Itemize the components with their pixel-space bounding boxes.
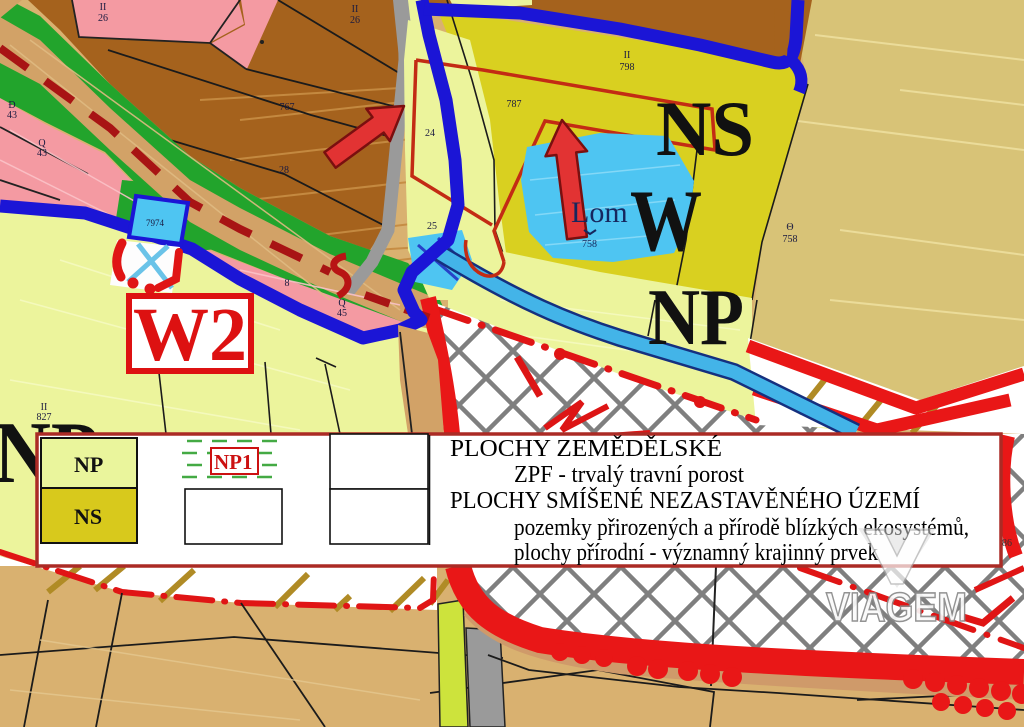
svg-text:86: 86 <box>1002 538 1012 549</box>
svg-text:PLOCHY ZEMĚDĚLSKÉ: PLOCHY ZEMĚDĚLSKÉ <box>450 436 722 462</box>
svg-text:NP: NP <box>648 274 744 362</box>
svg-text:NS: NS <box>656 85 754 172</box>
svg-text:758: 758 <box>783 234 798 245</box>
svg-text:28: 28 <box>279 165 289 176</box>
svg-text:758: 758 <box>582 239 597 250</box>
svg-text:Θ: Θ <box>786 222 793 233</box>
svg-text:NP: NP <box>74 452 103 477</box>
svg-text:43: 43 <box>37 148 47 159</box>
svg-text:26: 26 <box>98 13 108 24</box>
svg-text:787: 787 <box>507 99 522 110</box>
svg-text:W: W <box>630 173 702 270</box>
svg-text:II: II <box>100 2 107 13</box>
svg-text:798: 798 <box>620 62 635 73</box>
svg-text:II: II <box>624 50 631 61</box>
svg-text:VIAGEM: VIAGEM <box>826 584 967 630</box>
svg-text:PLOCHY SMÍŠENÉ NEZASTAVĚNÉHO Ú: PLOCHY SMÍŠENÉ NEZASTAVĚNÉHO ÚZEMÍ <box>450 487 920 514</box>
svg-text:45: 45 <box>337 308 347 319</box>
svg-text:NS: NS <box>74 504 102 529</box>
svg-text:Lom: Lom <box>571 196 628 229</box>
svg-text:767: 767 <box>280 102 295 113</box>
svg-text:W2: W2 <box>133 293 247 377</box>
svg-text:24: 24 <box>425 128 435 139</box>
svg-text:plochy přírodní - významný kra: plochy přírodní - významný krajinný prve… <box>514 540 878 566</box>
svg-text:ZPF - trvalý travní porost: ZPF - trvalý travní porost <box>514 462 744 488</box>
svg-text:26: 26 <box>350 15 360 26</box>
svg-text:827: 827 <box>37 412 52 423</box>
svg-text:7974: 7974 <box>146 218 165 228</box>
svg-text:43: 43 <box>7 110 17 121</box>
svg-text:8: 8 <box>285 278 290 289</box>
svg-text:II: II <box>352 4 359 15</box>
svg-text:NP1: NP1 <box>214 450 253 474</box>
svg-text:25: 25 <box>427 221 437 232</box>
